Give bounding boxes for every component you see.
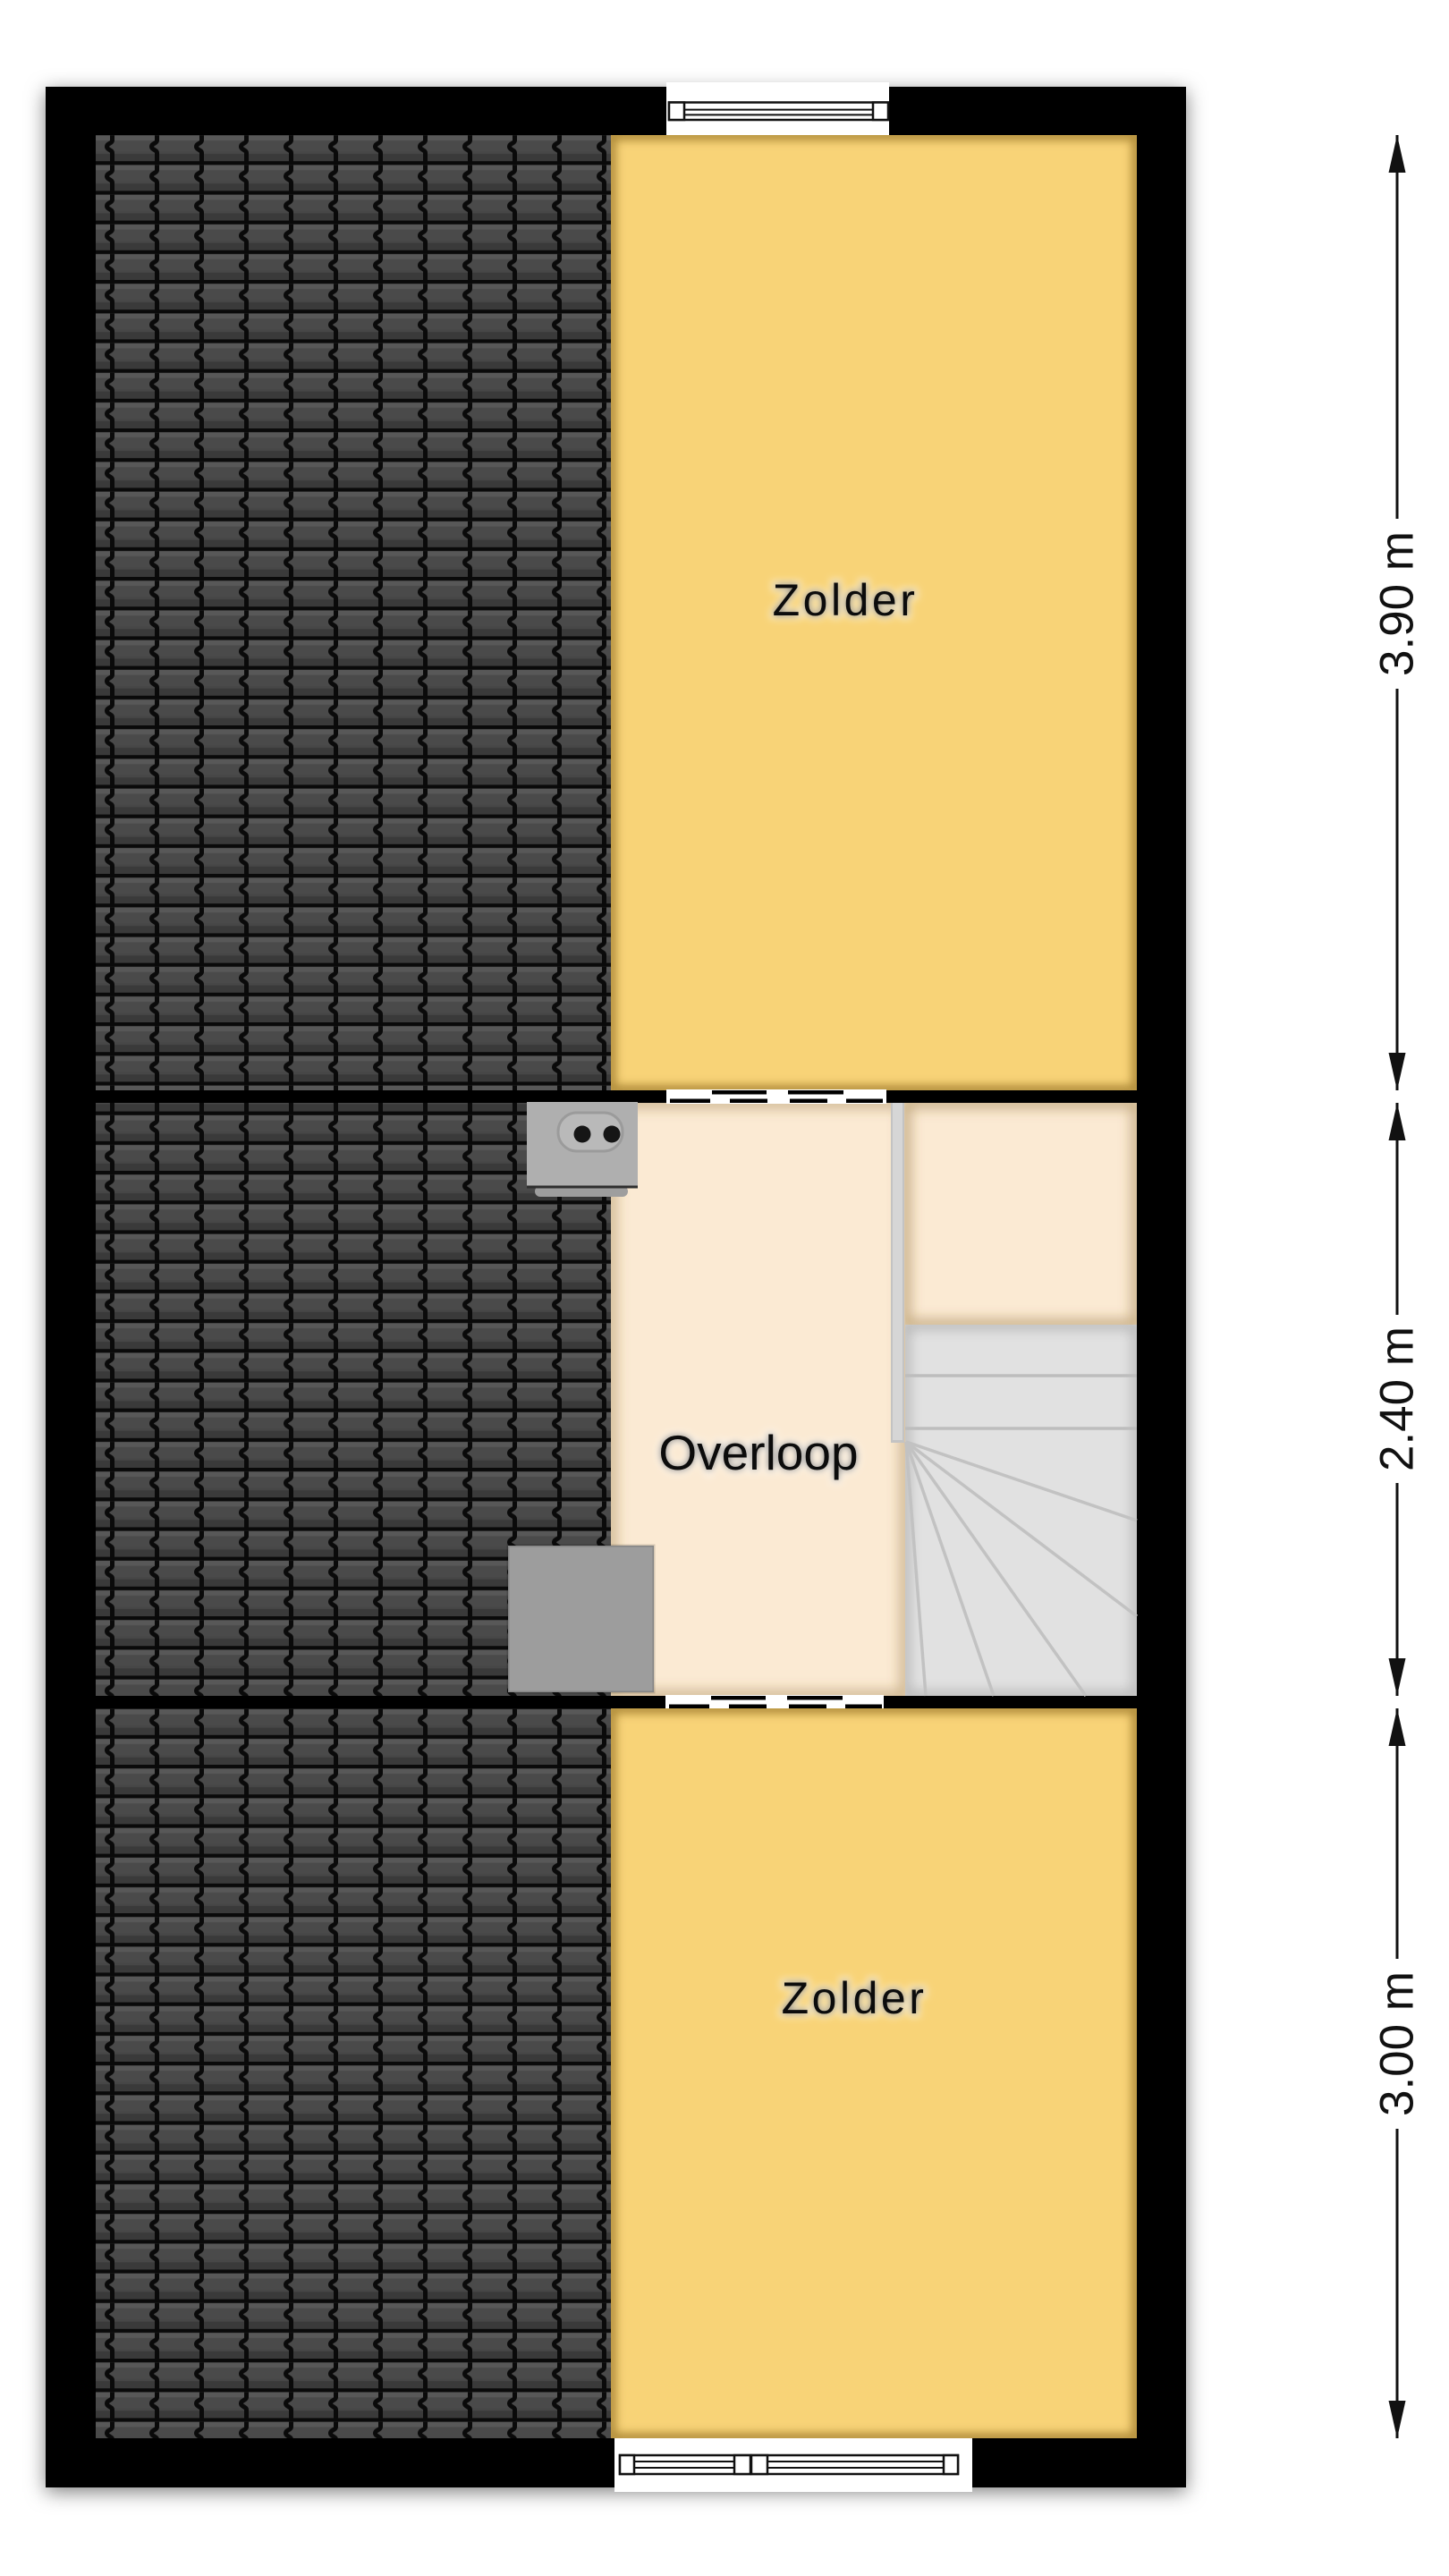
svg-text:Overloop: Overloop: [658, 1425, 858, 1480]
svg-text:2.40 m: 2.40 m: [1371, 1326, 1424, 1471]
svg-text:3.00 m: 3.00 m: [1371, 1971, 1424, 2116]
svg-text:Zolder: Zolder: [773, 575, 919, 625]
svg-text:Zolder: Zolder: [782, 1973, 928, 2023]
svg-text:3.90 m: 3.90 m: [1371, 531, 1424, 676]
